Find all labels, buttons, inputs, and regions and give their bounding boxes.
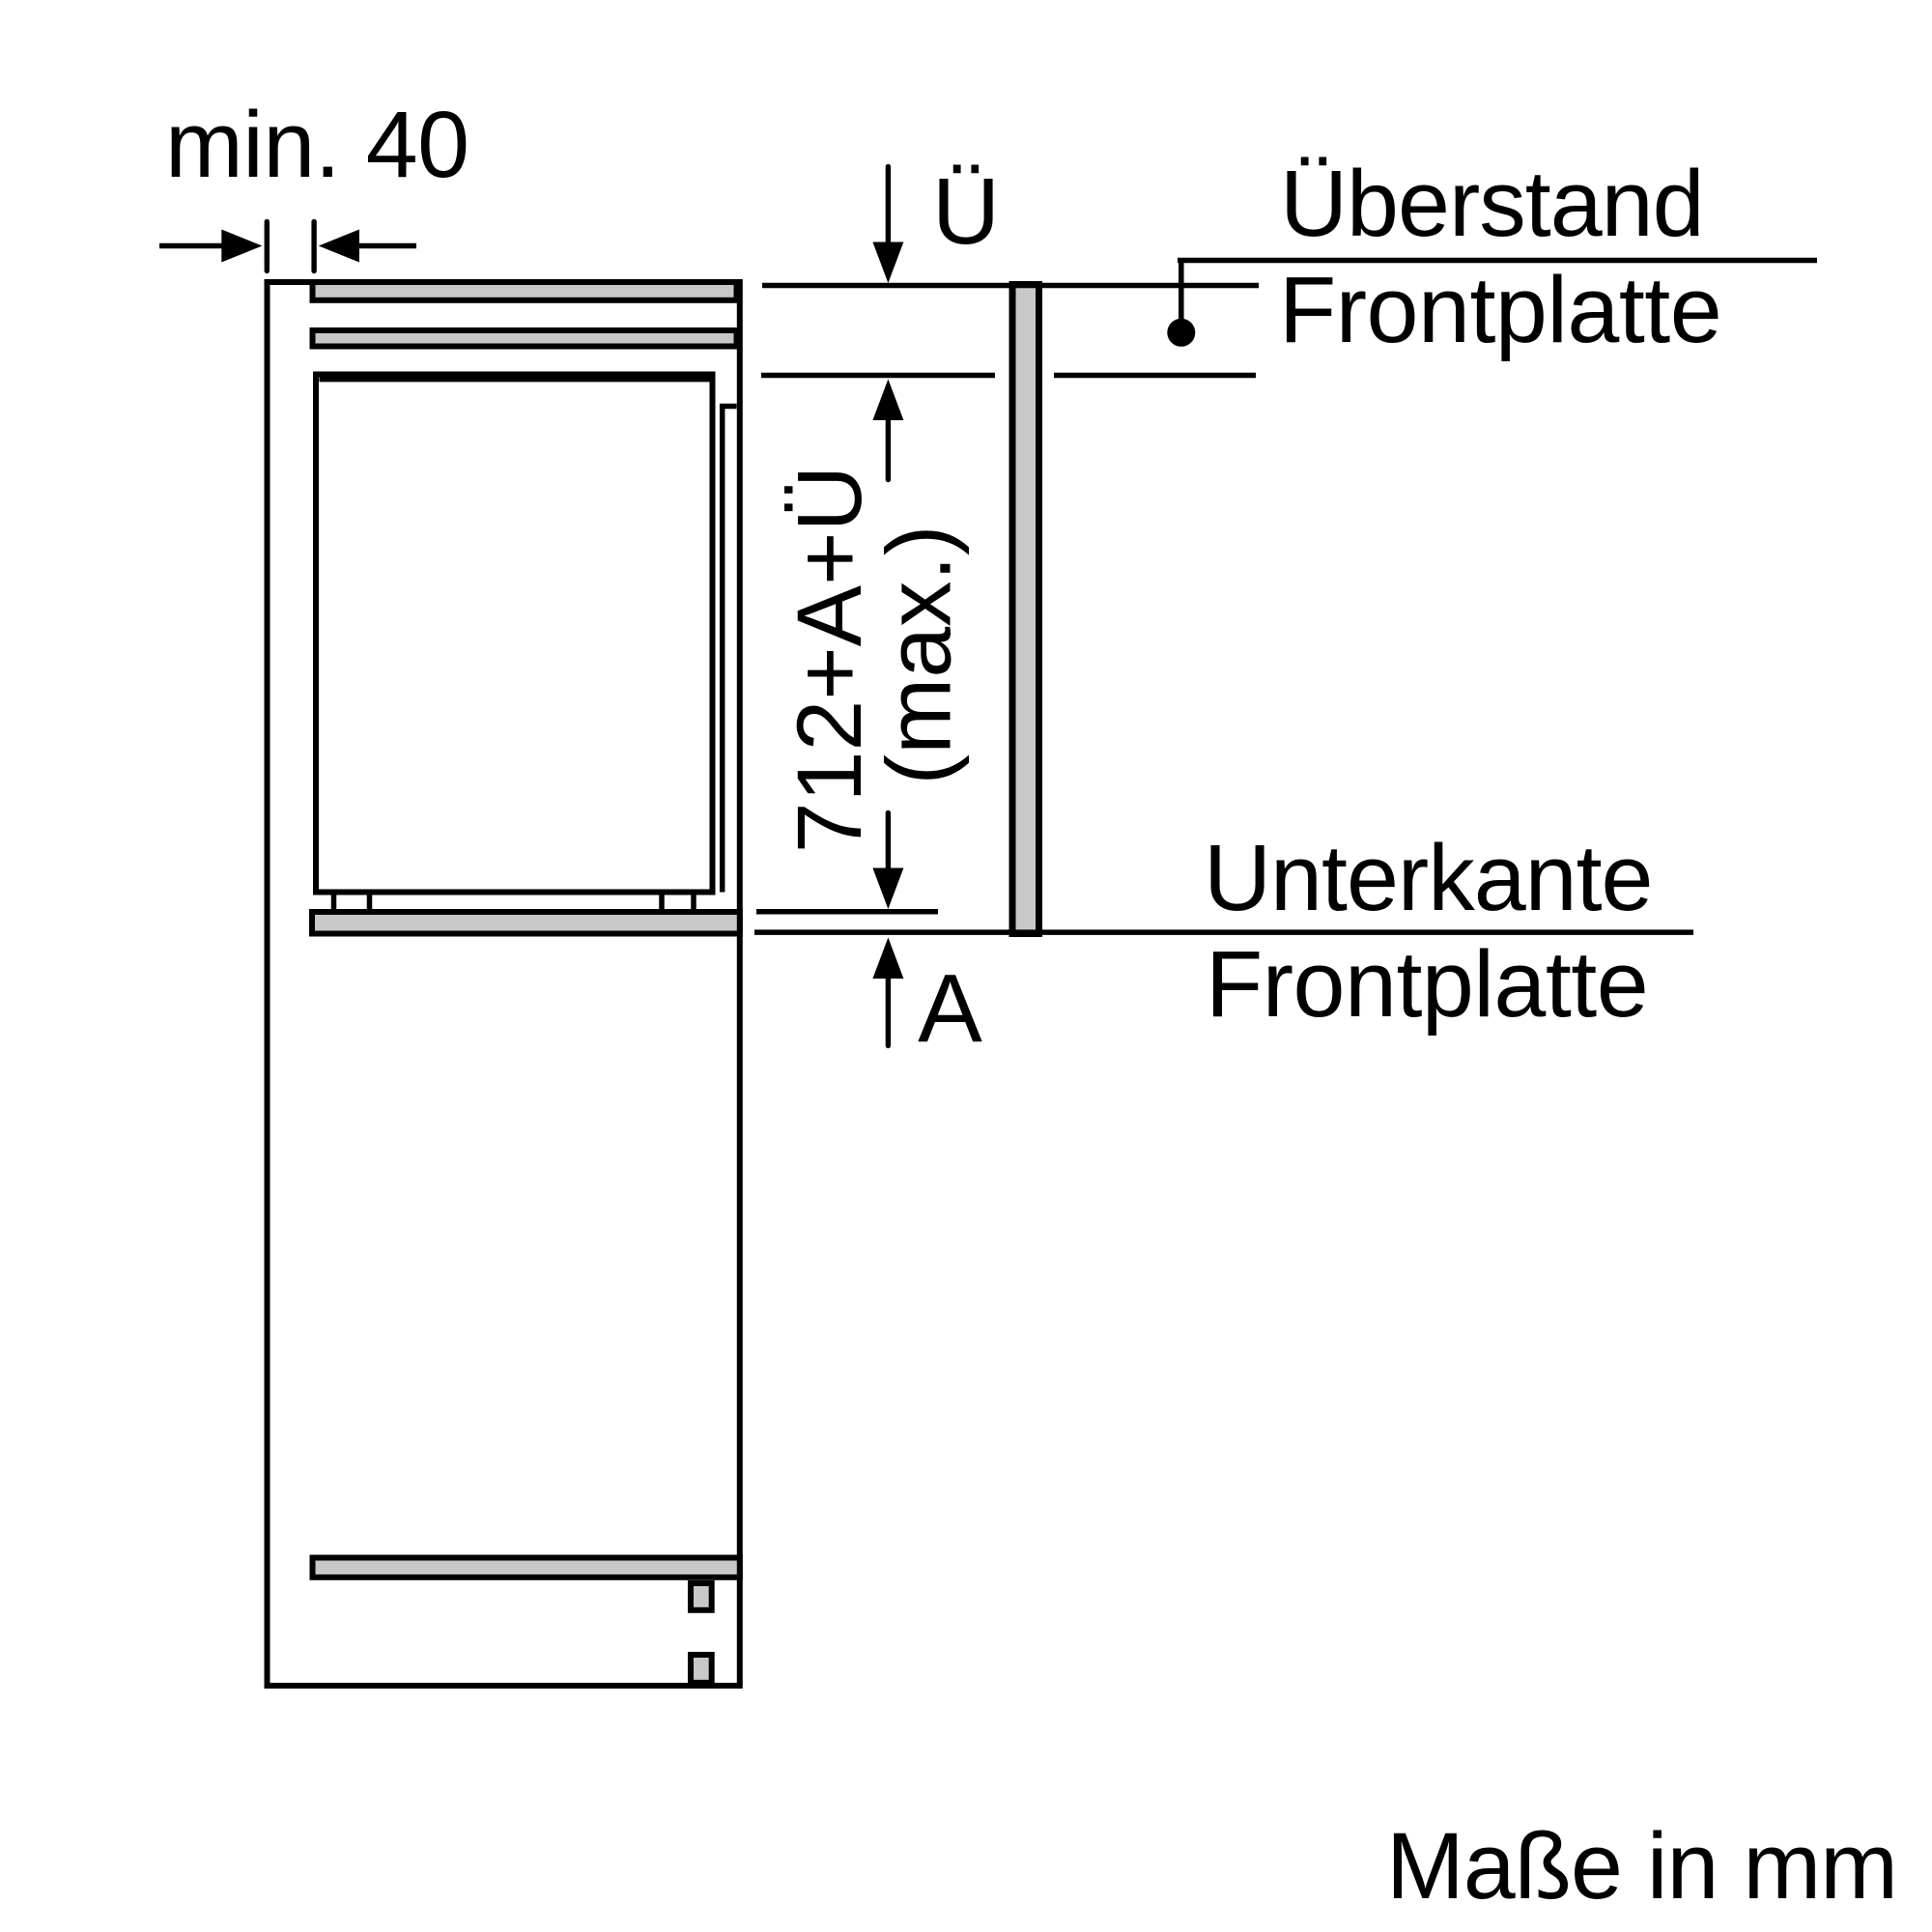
svg-text:min. 40: min. 40 [165,92,469,197]
svg-text:712+A+Ü: 712+A+Ü [779,466,881,853]
svg-text:Maße in mm: Maße in mm [1386,1813,1897,1918]
svg-text:Frontplatte: Frontplatte [1279,257,1721,362]
svg-text:Überstand: Überstand [1280,151,1704,256]
svg-text:A: A [918,954,982,1063]
svg-text:Ü: Ü [932,158,1000,264]
svg-text:(max.): (max.) [868,525,971,784]
svg-text:Unterkante: Unterkante [1204,825,1653,930]
svg-text:Frontplatte: Frontplatte [1206,931,1648,1037]
